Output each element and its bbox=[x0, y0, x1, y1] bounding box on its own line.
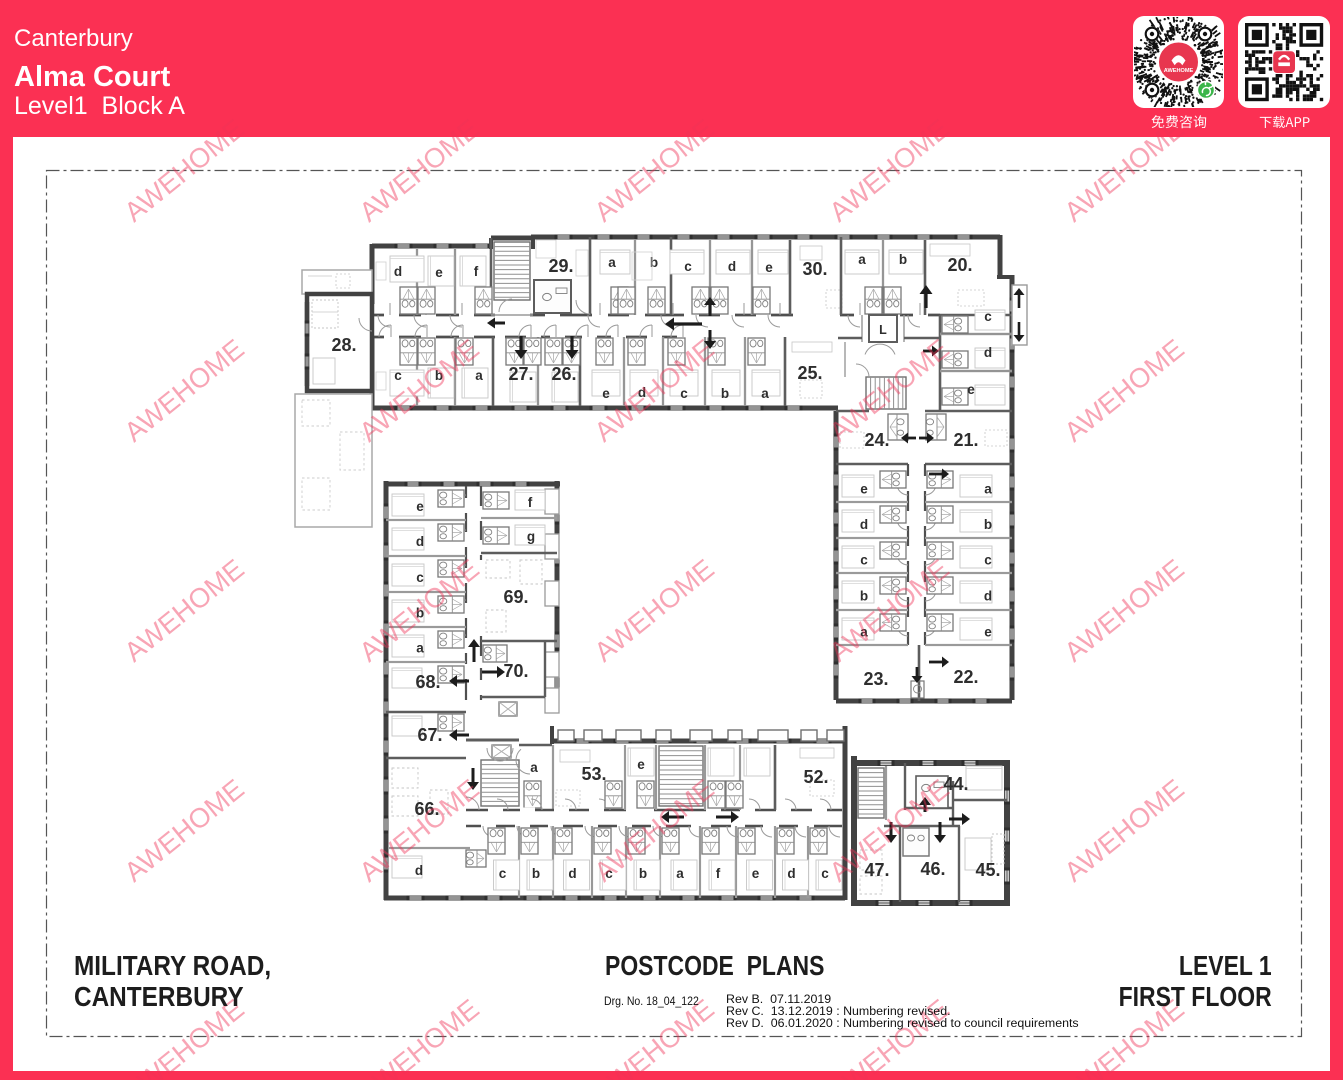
svg-text:AWEHOME: AWEHOME bbox=[118, 553, 250, 668]
svg-text:d: d bbox=[416, 534, 424, 549]
svg-text:a: a bbox=[475, 368, 483, 383]
svg-text:d: d bbox=[984, 345, 992, 360]
svg-text:d: d bbox=[415, 863, 423, 878]
svg-text:26.: 26. bbox=[551, 364, 576, 384]
svg-text:c: c bbox=[680, 386, 688, 401]
svg-text:d: d bbox=[984, 589, 992, 604]
svg-text:20.: 20. bbox=[947, 255, 972, 275]
svg-text:AWEHOME: AWEHOME bbox=[1164, 68, 1194, 74]
svg-text:e: e bbox=[637, 757, 645, 772]
svg-text:a: a bbox=[416, 641, 424, 656]
svg-text:e: e bbox=[967, 382, 975, 397]
svg-text:e: e bbox=[602, 386, 610, 401]
svg-text:c: c bbox=[416, 570, 424, 585]
svg-text:b: b bbox=[860, 589, 868, 604]
svg-text:68.: 68. bbox=[415, 672, 440, 692]
svg-text:a: a bbox=[530, 760, 538, 775]
svg-text:e: e bbox=[765, 260, 773, 275]
svg-text:d: d bbox=[860, 517, 868, 532]
svg-text:e: e bbox=[435, 265, 443, 280]
svg-text:f: f bbox=[716, 866, 721, 881]
svg-text:30.: 30. bbox=[802, 259, 827, 279]
svg-text:53.: 53. bbox=[581, 764, 606, 784]
svg-text:c: c bbox=[860, 553, 868, 568]
svg-text:b: b bbox=[984, 517, 992, 532]
svg-text:d: d bbox=[728, 259, 736, 274]
svg-text:70.: 70. bbox=[503, 661, 528, 681]
svg-text:d: d bbox=[787, 866, 795, 881]
svg-text:a: a bbox=[761, 386, 769, 401]
svg-text:b: b bbox=[721, 386, 729, 401]
svg-text:22.: 22. bbox=[953, 667, 978, 687]
svg-text:52.: 52. bbox=[803, 767, 828, 787]
svg-text:c: c bbox=[984, 553, 992, 568]
svg-text:AWEHOME: AWEHOME bbox=[1058, 333, 1190, 448]
svg-text:d: d bbox=[394, 264, 402, 279]
svg-text:c: c bbox=[684, 259, 692, 274]
svg-text:25.: 25. bbox=[797, 363, 822, 383]
svg-text:f: f bbox=[474, 264, 479, 279]
svg-text:e: e bbox=[416, 499, 424, 514]
svg-text:28.: 28. bbox=[331, 335, 356, 355]
svg-text:b: b bbox=[899, 252, 907, 267]
svg-text:e: e bbox=[860, 482, 868, 497]
svg-text:a: a bbox=[984, 482, 992, 497]
svg-text:a: a bbox=[676, 866, 684, 881]
svg-text:46.: 46. bbox=[920, 859, 945, 879]
svg-text:29.: 29. bbox=[548, 256, 573, 276]
svg-text:b: b bbox=[532, 866, 540, 881]
svg-text:e: e bbox=[984, 625, 992, 640]
svg-text:67.: 67. bbox=[417, 725, 442, 745]
svg-text:d: d bbox=[568, 866, 576, 881]
svg-text:27.: 27. bbox=[508, 364, 533, 384]
svg-text:a: a bbox=[858, 252, 866, 267]
svg-text:e: e bbox=[752, 866, 760, 881]
svg-text:AWEHOME: AWEHOME bbox=[588, 553, 720, 668]
svg-text:c: c bbox=[984, 309, 992, 324]
svg-text:23.: 23. bbox=[863, 669, 888, 689]
svg-text:c: c bbox=[499, 866, 507, 881]
svg-text:f: f bbox=[528, 495, 533, 510]
svg-text:c: c bbox=[394, 368, 402, 383]
svg-text:AWEHOME: AWEHOME bbox=[118, 773, 250, 888]
svg-text:b: b bbox=[639, 866, 647, 881]
svg-text:g: g bbox=[527, 529, 535, 544]
svg-text:21.: 21. bbox=[953, 430, 978, 450]
svg-text:a: a bbox=[608, 255, 616, 270]
svg-text:L: L bbox=[879, 323, 887, 337]
svg-text:AWEHOME: AWEHOME bbox=[118, 333, 250, 448]
svg-text:24.: 24. bbox=[864, 430, 889, 450]
svg-text:AWEHOME: AWEHOME bbox=[1058, 773, 1190, 888]
svg-text:AWEHOME: AWEHOME bbox=[1058, 553, 1190, 668]
svg-text:45.: 45. bbox=[975, 860, 1000, 880]
svg-text:69.: 69. bbox=[503, 587, 528, 607]
svg-text:b: b bbox=[650, 255, 658, 270]
